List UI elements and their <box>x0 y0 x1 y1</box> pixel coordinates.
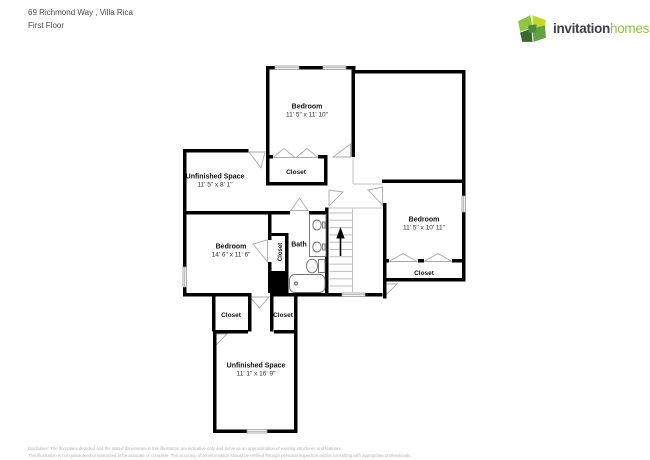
room-dims: 11' 5" x 10' 11" <box>403 225 445 233</box>
room-name: Bedroom <box>286 103 328 112</box>
room-name: Bedroom <box>403 216 445 225</box>
floor-plan-drawing <box>0 0 650 460</box>
room-label-bath: Bath <box>291 240 307 249</box>
room-label-bedroom-left: Bedroom 14' 6" x 11' 6" <box>212 243 251 260</box>
room-label-closet-bottom-right: Closet <box>273 304 293 322</box>
room-name: Unfinished Space <box>186 173 245 182</box>
room-name: Closet <box>221 312 241 319</box>
room-label-closet-right: Closet <box>414 262 434 280</box>
room-label-closet-bath: Closet <box>269 243 287 261</box>
room-label-bedroom-right: Bedroom 11' 5" x 10' 11" <box>403 216 445 233</box>
toilet-tank <box>319 260 326 273</box>
room-dims: 11' 5" x 8' 1" <box>186 182 245 190</box>
bath-fixtures <box>290 215 327 293</box>
room-dims: 14' 6" x 11' 6" <box>212 252 251 260</box>
room-name: Bath <box>291 240 307 249</box>
door-bedroom-right <box>368 187 383 205</box>
room-label-unfinished-top: Unfinished Space 11' 5" x 8' 1" <box>186 173 245 190</box>
room-label-bedroom-top: Bedroom 11' 5" x 11' 10" <box>286 103 328 120</box>
bifold-closet-mid-left <box>273 149 295 158</box>
door-closet-bath <box>253 240 268 262</box>
sink-icon <box>313 220 321 230</box>
bifold-closet-mid-right <box>296 149 318 158</box>
room-name: Bedroom <box>212 243 251 252</box>
room-name: Closet <box>278 243 284 261</box>
room-dims: 11' 5" x 11' 10" <box>286 112 328 120</box>
room-dims: 11' 1" x 16' 9" <box>227 371 286 379</box>
disclaimer-line-1: Disclaimer: The floorplans depicted and … <box>28 446 342 451</box>
room-label-closet-mid: Closet <box>286 161 306 179</box>
room-name: Closet <box>414 270 434 277</box>
sink-icon <box>313 242 321 252</box>
room-name: Unfinished Space <box>227 362 286 371</box>
door-bedroom-top <box>333 144 351 157</box>
door-bath <box>291 198 308 211</box>
bifold-closet-right-1 <box>389 254 417 262</box>
room-name: Closet <box>273 312 293 319</box>
room-name: Closet <box>286 169 306 176</box>
door-unfinished-bottom <box>216 334 227 345</box>
door-exterior-right <box>386 284 397 295</box>
bifold-closet-right-2 <box>424 254 452 262</box>
door-hall-landing <box>329 190 343 206</box>
room-label-closet-bottom-left: Closet <box>221 304 241 322</box>
stairs-up-arrow-icon <box>336 227 344 256</box>
room-label-unfinished-bottom: Unfinished Space 11' 1" x 16' 9" <box>227 362 286 379</box>
door-vestibule <box>250 297 269 308</box>
door-unfinished-top <box>249 152 265 168</box>
disclaimer-line-2: This illustration is not guaranteed or w… <box>28 453 412 458</box>
toilet-icon <box>307 259 318 273</box>
floorplan-page: 69 Richmond Way , Villa Rica First Floor… <box>0 0 650 460</box>
